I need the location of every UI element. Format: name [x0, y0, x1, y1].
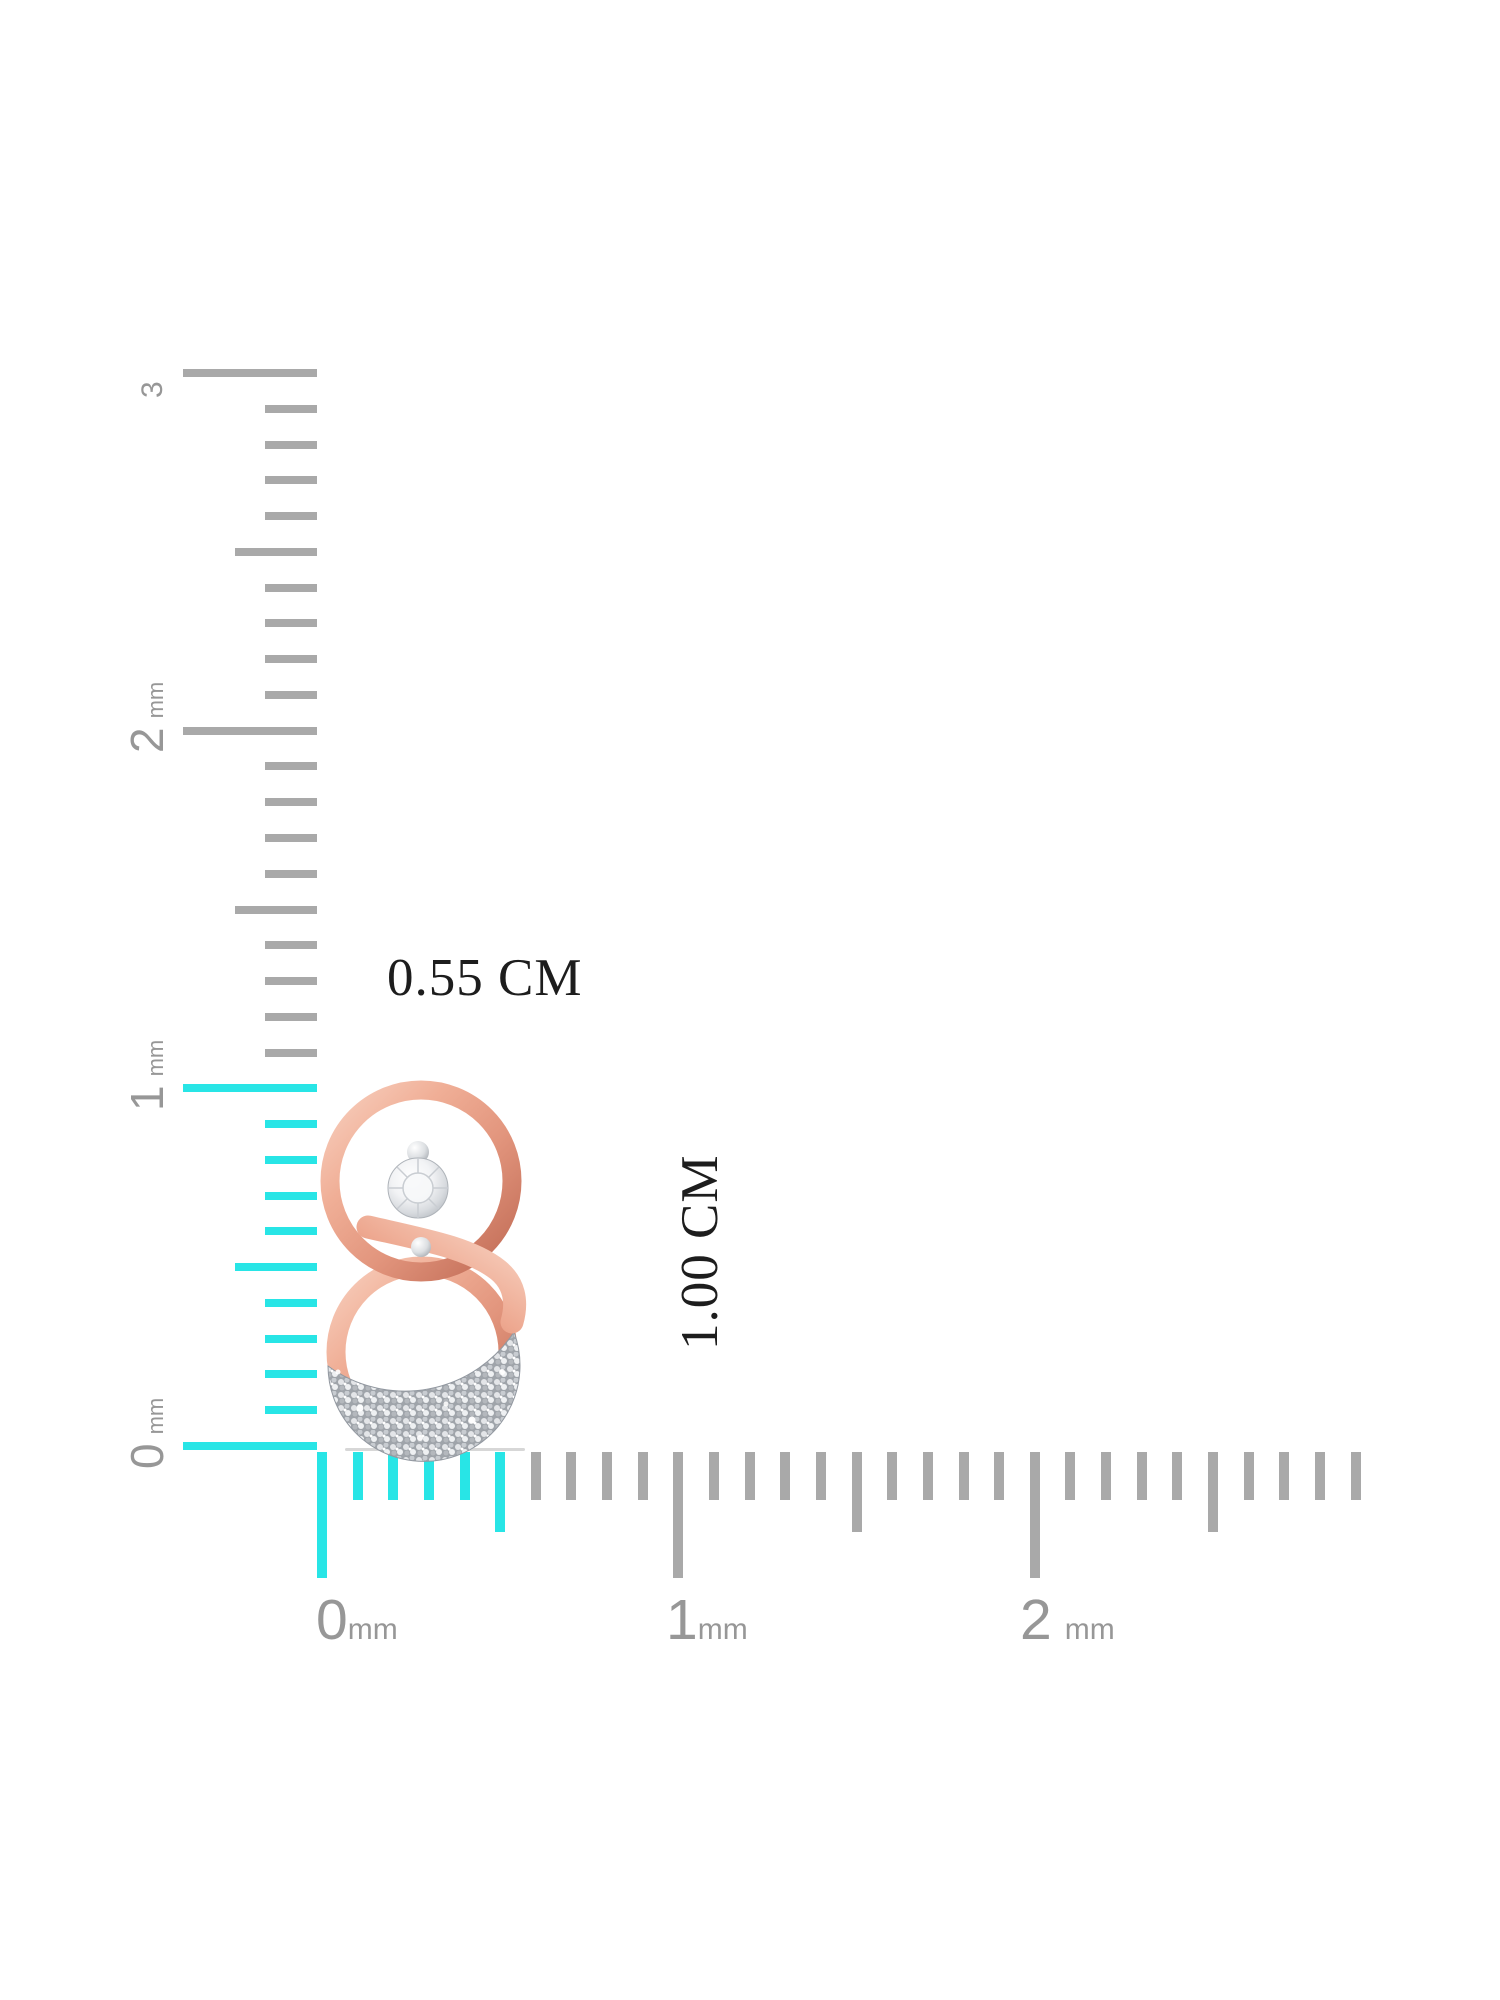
horizontal-ruler-label-1-unit: mm [698, 1613, 748, 1646]
vertical-ruler-label-1-value: 1 [121, 1085, 173, 1111]
horizontal-ruler-tick [317, 1452, 327, 1578]
horizontal-ruler-label-2-unit: mm [1065, 1613, 1115, 1646]
horizontal-ruler-tick [1065, 1452, 1075, 1500]
vertical-ruler-tick [183, 727, 317, 735]
horizontal-ruler-tick [602, 1452, 612, 1500]
horizontal-ruler-tick [1208, 1452, 1218, 1532]
vertical-ruler-label-0-value: 0 [121, 1443, 173, 1469]
earring-image [280, 1035, 570, 1465]
horizontal-ruler-tick [1030, 1452, 1040, 1578]
vertical-ruler-label-0-unit: mm [143, 1398, 168, 1435]
horizontal-ruler-tick [852, 1452, 862, 1532]
vertical-ruler-label-1: 1mm [122, 1040, 181, 1111]
vertical-ruler-tick [265, 798, 317, 806]
height-measurement-label: 1.00 CM [670, 1155, 730, 1350]
vertical-ruler-tick [183, 369, 317, 377]
horizontal-ruler-tick [1172, 1452, 1182, 1500]
horizontal-ruler-tick [709, 1452, 719, 1500]
horizontal-ruler-tick [1315, 1452, 1325, 1500]
solitaire-facets [388, 1158, 448, 1218]
horizontal-ruler-tick [1244, 1452, 1254, 1500]
horizontal-ruler-tick [887, 1452, 897, 1500]
vertical-ruler-label-2: 2mm [122, 682, 181, 753]
horizontal-ruler-tick [638, 1452, 648, 1500]
horizontal-ruler-label-0: 0mm [316, 1592, 398, 1658]
vertical-ruler-tick [265, 941, 317, 949]
horizontal-ruler-tick [816, 1452, 826, 1500]
horizontal-ruler-tick [959, 1452, 969, 1500]
vertical-ruler-label-2-unit: mm [143, 682, 168, 719]
horizontal-ruler-label-0-unit: mm [348, 1613, 398, 1646]
product-measurement-image: 3 2mm 1mm 0mm 0mm 1mm 2mm 0.55 CM 1.00 C… [0, 0, 1500, 2000]
vertical-ruler-tick [265, 691, 317, 699]
horizontal-ruler-tick [994, 1452, 1004, 1500]
vertical-ruler-label-3: 3 [128, 372, 180, 398]
vertical-ruler-tick [265, 584, 317, 592]
horizontal-ruler-tick [673, 1452, 683, 1578]
vertical-ruler-label-2-value: 2 [121, 727, 173, 753]
horizontal-ruler-label-1-value: 1 [666, 1588, 698, 1652]
vertical-ruler-tick [265, 762, 317, 770]
vertical-ruler-tick [265, 1013, 317, 1021]
vertical-ruler-tick [235, 906, 317, 914]
horizontal-ruler-tick [1137, 1452, 1147, 1500]
vertical-ruler-label-1-unit: mm [143, 1040, 168, 1077]
horizontal-ruler-label-2-value: 2 [1020, 1588, 1052, 1652]
horizontal-ruler-tick [923, 1452, 933, 1500]
vertical-ruler-tick [265, 655, 317, 663]
vertical-ruler-tick [265, 977, 317, 985]
vertical-ruler-tick [265, 476, 317, 484]
horizontal-ruler-tick [1101, 1452, 1111, 1500]
horizontal-ruler-tick [780, 1452, 790, 1500]
width-measurement-label: 0.55 CM [387, 948, 582, 1008]
pave-arc [328, 1332, 520, 1461]
vertical-ruler-tick [235, 548, 317, 556]
horizontal-ruler-label-0-value: 0 [316, 1588, 348, 1652]
horizontal-ruler-tick [1351, 1452, 1361, 1500]
horizontal-ruler-tick [745, 1452, 755, 1500]
solitaire-bottom-prong [411, 1237, 431, 1257]
horizontal-ruler-tick [1279, 1452, 1289, 1500]
horizontal-ruler-label-2: 2mm [1020, 1592, 1115, 1658]
vertical-ruler-tick [265, 619, 317, 627]
vertical-ruler-tick [265, 441, 317, 449]
vertical-ruler-label-3-value: 3 [136, 381, 169, 398]
vertical-ruler-tick [265, 834, 317, 842]
vertical-ruler-label-0: 0mm [122, 1398, 181, 1469]
vertical-ruler-tick [265, 405, 317, 413]
vertical-ruler-tick [265, 512, 317, 520]
vertical-ruler-tick [265, 870, 317, 878]
horizontal-ruler-label-1: 1mm [666, 1592, 748, 1658]
